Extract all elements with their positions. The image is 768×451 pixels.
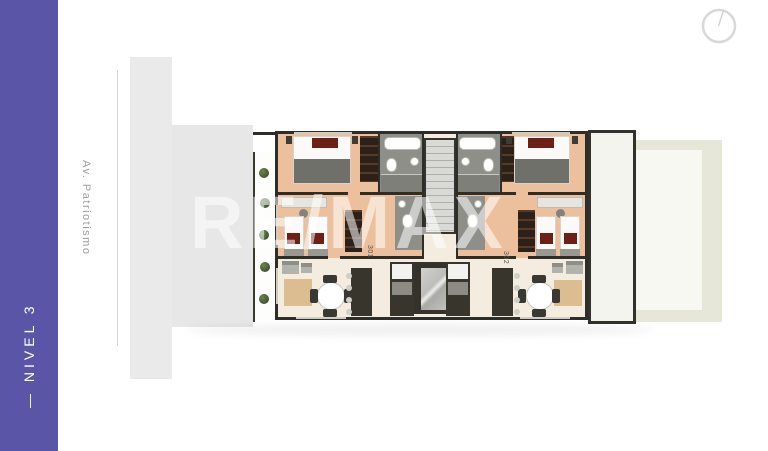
toilet bbox=[483, 158, 494, 172]
armchair bbox=[301, 263, 312, 273]
fridge bbox=[392, 264, 412, 279]
sink bbox=[410, 157, 419, 166]
nightstand bbox=[506, 136, 512, 144]
floorplan-page: — NIVEL 3 Av. Patriotismo bbox=[0, 0, 768, 451]
toilet bbox=[386, 158, 397, 172]
stool bbox=[346, 297, 352, 303]
window bbox=[520, 317, 570, 319]
street-line bbox=[117, 70, 118, 346]
stove bbox=[392, 282, 412, 295]
dining-chair bbox=[323, 275, 337, 283]
wardrobe bbox=[360, 136, 378, 182]
nightstand bbox=[572, 136, 578, 144]
compass-icon bbox=[696, 4, 742, 50]
dining-chair bbox=[532, 275, 546, 283]
dining-chair bbox=[532, 309, 546, 317]
bed-blanket bbox=[294, 159, 350, 183]
stove bbox=[448, 282, 468, 295]
kitchen-island bbox=[351, 268, 372, 316]
stool bbox=[514, 297, 520, 303]
dining-table bbox=[317, 282, 345, 310]
dining-chair bbox=[323, 309, 337, 317]
stool bbox=[514, 285, 520, 291]
nightstand bbox=[286, 136, 292, 144]
dining-chair bbox=[552, 289, 560, 303]
nightstand bbox=[352, 136, 358, 144]
sofa bbox=[566, 261, 583, 274]
bed-blanket bbox=[515, 159, 569, 183]
sink bbox=[461, 157, 470, 166]
stool bbox=[346, 285, 352, 291]
window bbox=[296, 317, 346, 319]
window bbox=[294, 132, 352, 134]
bed-cushion bbox=[312, 138, 338, 148]
elevator-door bbox=[421, 268, 449, 310]
dining-chair bbox=[310, 289, 318, 303]
level-label: — NIVEL 3 bbox=[0, 268, 58, 443]
bed-cushion bbox=[528, 138, 554, 148]
wall bbox=[253, 132, 278, 135]
bathtub bbox=[459, 137, 496, 150]
plan-shadow bbox=[185, 324, 655, 336]
stool bbox=[346, 273, 352, 279]
bathtub bbox=[384, 137, 421, 150]
watermark: RE/MAX bbox=[190, 186, 640, 260]
context-building-strip bbox=[130, 57, 172, 379]
dining-table bbox=[526, 282, 554, 310]
armchair bbox=[552, 263, 563, 273]
fridge bbox=[448, 264, 468, 279]
plant-icon bbox=[259, 294, 269, 304]
kitchen-island bbox=[492, 268, 513, 316]
window bbox=[276, 268, 278, 304]
stool bbox=[514, 309, 520, 315]
rug bbox=[284, 279, 312, 306]
stool bbox=[514, 273, 520, 279]
plant-icon bbox=[259, 168, 269, 178]
street-label: Av. Patriotismo bbox=[80, 160, 92, 280]
stool bbox=[346, 309, 352, 315]
window bbox=[512, 132, 570, 134]
